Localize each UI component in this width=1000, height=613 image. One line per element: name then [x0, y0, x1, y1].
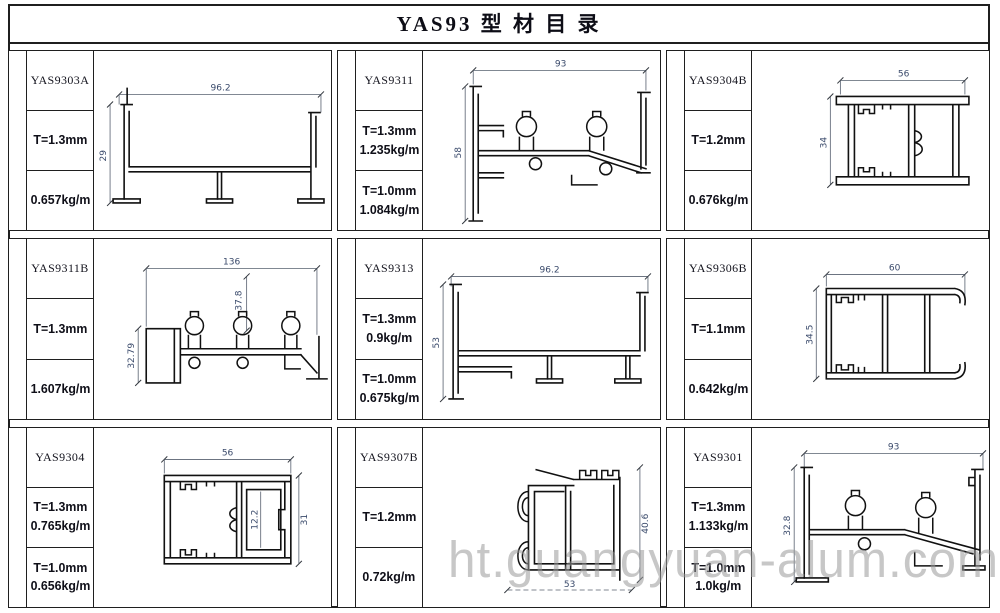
- profile-drawing: 40.6 53: [423, 428, 660, 607]
- profile-code: YAS9307B: [360, 450, 418, 465]
- spec-box-2: 0.657kg/m: [27, 171, 93, 230]
- profile-code-box: YAS9304: [27, 428, 93, 488]
- dim-width: 56: [898, 69, 910, 79]
- spec-line: T=1.3mm: [33, 321, 87, 338]
- profile-code-box: YAS9306B: [685, 239, 751, 299]
- profile-code-box: YAS9313: [356, 239, 422, 299]
- spec-box-1: T=1.3mm: [27, 111, 93, 171]
- dim-height: 32.8: [783, 515, 793, 535]
- label-column: YAS9304 T=1.3mm0.765kg/m T=1.0mm0.656kg/…: [26, 428, 94, 607]
- dim-width: 60: [889, 264, 901, 274]
- spec-box-2: 1.607kg/m: [27, 360, 93, 419]
- profile-code: YAS9304: [35, 450, 84, 465]
- profile-code: YAS9306B: [689, 261, 747, 276]
- profile-cell-7: YAS9304 T=1.3mm0.765kg/m T=1.0mm0.656kg/…: [8, 427, 332, 608]
- label-column: YAS9311B T=1.3mm 1.607kg/m: [26, 239, 94, 418]
- cell-gutter: [667, 428, 684, 607]
- spec-line: T=1.0mm: [362, 183, 416, 200]
- spec-box-2: T=1.0mm0.675kg/m: [356, 360, 422, 419]
- spec-line: T=1.0mm: [691, 560, 745, 577]
- spec-line: 0.765kg/m: [30, 518, 90, 535]
- profile-cell-5: YAS9313 T=1.3mm0.9kg/m T=1.0mm0.675kg/m …: [337, 238, 661, 419]
- dim-height-2: 37.8: [235, 291, 245, 311]
- cell-gutter: [9, 428, 26, 607]
- spec-line: T=1.0mm: [33, 560, 87, 577]
- profile-code-box: YAS9304B: [685, 51, 751, 111]
- profile-drawing: 56 31 12.2: [94, 428, 331, 607]
- dim-width: 53: [564, 580, 576, 590]
- profile-cell-1: YAS9303A T=1.3mm 0.657kg/m 96.2 29: [8, 50, 332, 231]
- profile-cell-4: YAS9311B T=1.3mm 1.607kg/m 136 37.8 32.7…: [8, 238, 332, 419]
- profile-code-box: YAS9311: [356, 51, 422, 111]
- profile-code: YAS9301: [693, 450, 742, 465]
- dim-width: 96.2: [539, 266, 559, 276]
- cell-gutter: [9, 239, 26, 418]
- spec-box-1: T=1.3mm0.9kg/m: [356, 299, 422, 359]
- cell-gutter: [338, 428, 355, 607]
- cell-gutter: [9, 51, 26, 230]
- spec-line: T=1.1mm: [691, 321, 745, 338]
- dim-height: 58: [454, 147, 464, 159]
- dim-width: 93: [555, 59, 567, 69]
- spec-line: 1.0kg/m: [695, 578, 741, 595]
- spec-line: 0.656kg/m: [30, 578, 90, 595]
- profile-cell-9: YAS9301 T=1.3mm1.133kg/m T=1.0mm1.0kg/m …: [666, 427, 990, 608]
- cell-gutter: [667, 51, 684, 230]
- spec-box-1: T=1.2mm: [356, 488, 422, 548]
- profile-code: YAS9311: [364, 73, 413, 88]
- dim-height-2: 12.2: [251, 509, 261, 529]
- spec-line: 0.676kg/m: [688, 192, 748, 209]
- dim-width: 56: [222, 448, 234, 458]
- profile-grid: YAS9303A T=1.3mm 0.657kg/m 96.2 29: [8, 50, 990, 608]
- profile-code-box: YAS9301: [685, 428, 751, 488]
- spec-line: T=1.3mm: [362, 123, 416, 140]
- spec-line: 0.72kg/m: [363, 569, 416, 586]
- dim-width: 96.2: [210, 83, 230, 93]
- spec-line: T=1.3mm: [33, 132, 87, 149]
- profile-cell-2: YAS9311 T=1.3mm1.235kg/m T=1.0mm1.084kg/…: [337, 50, 661, 231]
- label-column: YAS9307B T=1.2mm 0.72kg/m: [355, 428, 423, 607]
- spec-line: 0.675kg/m: [359, 390, 419, 407]
- profile-code-box: YAS9311B: [27, 239, 93, 299]
- profile-code-box: YAS9307B: [356, 428, 422, 488]
- catalog-sheet: YAS93 型 材 目 录 YAS9303A T=1.3mm 0.657kg/m…: [0, 0, 1000, 613]
- profile-code: YAS9311B: [31, 261, 88, 276]
- label-column: YAS9306B T=1.1mm 0.642kg/m: [684, 239, 752, 418]
- spec-box-1: T=1.3mm0.765kg/m: [27, 488, 93, 548]
- spec-line: T=1.2mm: [362, 509, 416, 526]
- spec-line: 1.235kg/m: [359, 142, 419, 159]
- dim-height: 34.5: [805, 325, 815, 345]
- profile-drawing: 56 34: [752, 51, 989, 230]
- spec-box-2: T=1.0mm1.084kg/m: [356, 171, 422, 230]
- profile-code: YAS9313: [364, 261, 413, 276]
- spec-line: T=1.3mm: [33, 499, 87, 516]
- profile-drawing: 93 58: [423, 51, 660, 230]
- cell-gutter: [338, 51, 355, 230]
- profile-drawing: 60 34.5: [752, 239, 989, 418]
- dim-width: 93: [888, 442, 900, 452]
- profile-code: YAS9303A: [31, 73, 90, 88]
- label-column: YAS9303A T=1.3mm 0.657kg/m: [26, 51, 94, 230]
- label-column: YAS9304B T=1.2mm 0.676kg/m: [684, 51, 752, 230]
- dim-height: 40.6: [641, 513, 651, 533]
- spec-box-1: T=1.3mm1.133kg/m: [685, 488, 751, 548]
- spec-line: 1.133kg/m: [688, 518, 748, 535]
- spec-line: T=1.0mm: [362, 371, 416, 388]
- dim-height: 53: [432, 337, 442, 349]
- dim-height: 34: [819, 137, 829, 149]
- profile-drawing: 93 32.8: [752, 428, 989, 607]
- spec-box-1: T=1.1mm: [685, 299, 751, 359]
- profile-cell-8: YAS9307B T=1.2mm 0.72kg/m 40.6 53: [337, 427, 661, 608]
- spec-line: T=1.3mm: [691, 499, 745, 516]
- page-title: YAS93 型 材 目 录: [396, 8, 601, 38]
- label-column: YAS9301 T=1.3mm1.133kg/m T=1.0mm1.0kg/m: [684, 428, 752, 607]
- spec-line: 0.657kg/m: [30, 192, 90, 209]
- spec-line: T=1.2mm: [691, 132, 745, 149]
- dim-width: 136: [223, 258, 240, 268]
- spec-box-1: T=1.2mm: [685, 111, 751, 171]
- cell-gutter: [667, 239, 684, 418]
- spec-box-2: 0.676kg/m: [685, 171, 751, 230]
- cell-gutter: [338, 239, 355, 418]
- profile-drawing: 96.2 53: [423, 239, 660, 418]
- title-bar: YAS93 型 材 目 录: [8, 4, 990, 44]
- dim-height: 29: [99, 150, 109, 162]
- profile-drawing: 96.2 29: [94, 51, 331, 230]
- profile-code-box: YAS9303A: [27, 51, 93, 111]
- spec-line: 1.084kg/m: [359, 202, 419, 219]
- profile-cell-6: YAS9306B T=1.1mm 0.642kg/m 60 34.5: [666, 238, 990, 419]
- spec-line: 0.9kg/m: [366, 330, 412, 347]
- dim-height: 31: [300, 514, 310, 525]
- spec-box-2: 0.642kg/m: [685, 360, 751, 419]
- dim-height: 32.79: [127, 343, 137, 369]
- spec-box-2: T=1.0mm1.0kg/m: [685, 548, 751, 607]
- spec-line: 1.607kg/m: [30, 381, 90, 398]
- profile-code: YAS9304B: [689, 73, 747, 88]
- spec-line: T=1.3mm: [362, 311, 416, 328]
- profile-cell-3: YAS9304B T=1.2mm 0.676kg/m 56 34: [666, 50, 990, 231]
- spec-box-1: T=1.3mm: [27, 299, 93, 359]
- label-column: YAS9313 T=1.3mm0.9kg/m T=1.0mm0.675kg/m: [355, 239, 423, 418]
- spec-box-1: T=1.3mm1.235kg/m: [356, 111, 422, 171]
- profile-drawing: 136 37.8 32.79: [94, 239, 331, 418]
- spec-box-2: T=1.0mm0.656kg/m: [27, 548, 93, 607]
- spec-line: 0.642kg/m: [688, 381, 748, 398]
- label-column: YAS9311 T=1.3mm1.235kg/m T=1.0mm1.084kg/…: [355, 51, 423, 230]
- spec-box-2: 0.72kg/m: [356, 548, 422, 607]
